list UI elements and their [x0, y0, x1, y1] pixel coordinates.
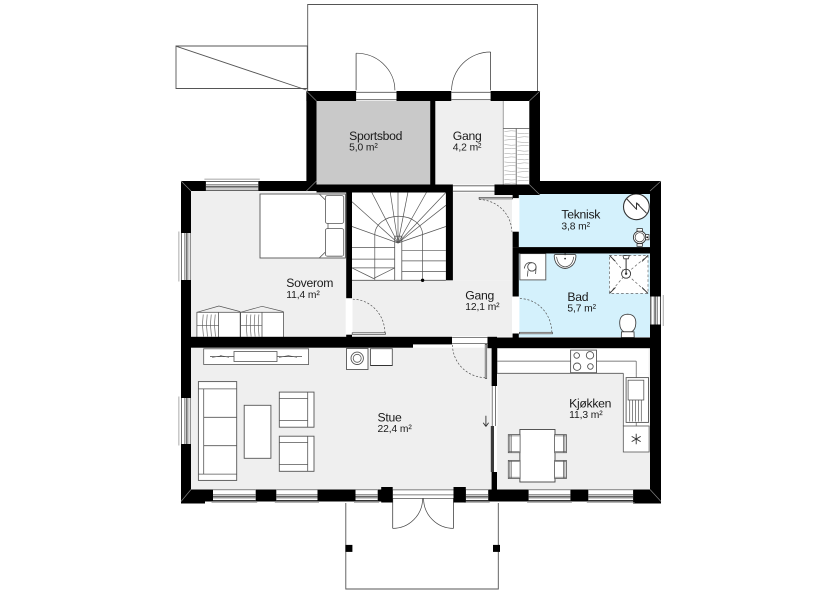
svg-text:5,7 m²: 5,7 m²: [567, 304, 596, 315]
svg-text:5,0 m²: 5,0 m²: [349, 143, 378, 154]
svg-text:22,4 m²: 22,4 m²: [378, 424, 413, 435]
svg-text:11,4 m²: 11,4 m²: [286, 290, 320, 301]
svg-text:11,3 m²: 11,3 m²: [569, 410, 603, 421]
svg-text:Teknisk: Teknisk: [561, 208, 601, 222]
svg-text:Gang: Gang: [465, 289, 494, 303]
svg-text:Soverom: Soverom: [286, 276, 333, 290]
svg-text:Bad: Bad: [567, 290, 588, 304]
svg-text:Gang: Gang: [453, 129, 482, 143]
svg-text:Stue: Stue: [378, 411, 402, 425]
svg-text:Sportsbod: Sportsbod: [349, 129, 402, 143]
svg-text:12,1 m²: 12,1 m²: [465, 302, 500, 313]
svg-text:Kjøkken: Kjøkken: [569, 397, 611, 411]
svg-text:3,8 m²: 3,8 m²: [561, 221, 590, 232]
svg-text:4,2 m²: 4,2 m²: [453, 143, 482, 154]
